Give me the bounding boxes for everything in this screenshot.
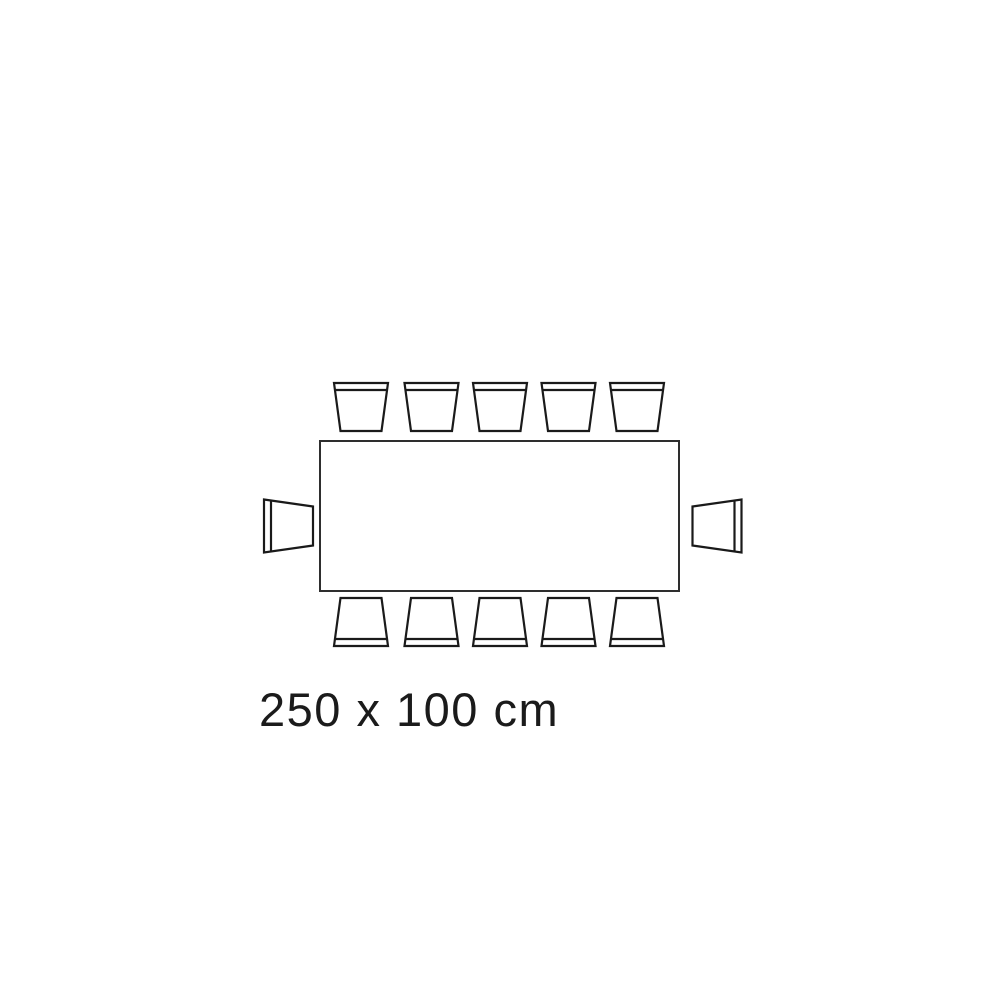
chair-top-3 [473,383,527,431]
chair-right-12 [693,500,742,553]
dimension-label: 250 x 100 cm [259,686,559,733]
chair-top-1 [334,383,388,431]
chair-bottom-6 [334,598,388,646]
chair-top-2 [405,383,459,431]
chair-top-5 [610,383,664,431]
chair-bottom-10 [610,598,664,646]
chair-bottom-7 [405,598,459,646]
table-top-shape [320,441,679,591]
chair-left-11 [264,500,313,553]
floorplan-canvas: 250 x 100 cm [0,0,1000,1000]
seating-diagram [0,0,1000,1000]
chair-top-4 [542,383,596,431]
chair-bottom-9 [542,598,596,646]
chair-bottom-8 [473,598,527,646]
